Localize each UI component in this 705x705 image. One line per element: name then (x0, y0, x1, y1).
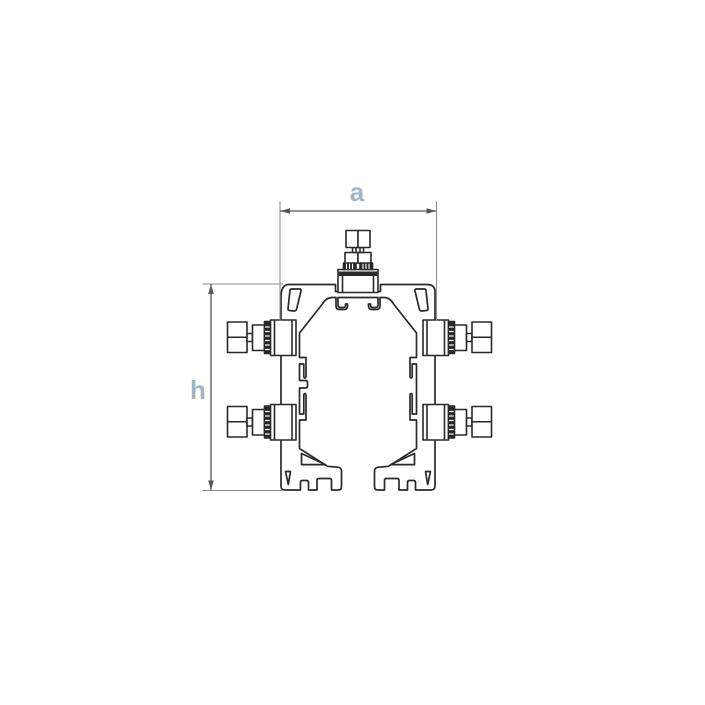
drawing-page: a h (0, 0, 705, 705)
web-hole-left (302, 454, 326, 465)
arrowhead-a-left (280, 208, 290, 214)
clamp-nut-lower-right (358, 253, 371, 264)
arrowhead-h-bottom (208, 481, 214, 491)
bolt-knurl (265, 406, 271, 438)
clamp-knob-left (346, 231, 358, 248)
bolt-knurl (449, 322, 455, 354)
web-hole-right (391, 454, 415, 465)
bolt-right-bottom (423, 405, 492, 441)
arrowhead-a-right (427, 208, 437, 214)
side-bolts (228, 320, 492, 440)
bolt-right-top (423, 320, 492, 356)
dimension-h: h (190, 284, 284, 491)
bolt-left-bottom (228, 405, 297, 441)
arrowhead-h-top (208, 284, 214, 294)
profile-body-group (281, 285, 435, 491)
bolt-neck (467, 334, 473, 342)
bolt-neck (247, 418, 253, 426)
bolt-neck (247, 334, 253, 342)
bolt-left-top (228, 320, 297, 356)
bolt-washer (253, 325, 265, 351)
dimension-label-a: a (350, 177, 365, 207)
bolt-washer (455, 410, 467, 436)
bolt-knurl (265, 322, 271, 354)
clamp-nut-lower-left (345, 253, 358, 264)
technical-drawing-canvas: a h (0, 0, 705, 705)
clamp-block-band (339, 272, 377, 277)
extension-lines-h (203, 284, 285, 491)
bolt-washer (455, 325, 467, 351)
bolt-washer (253, 410, 265, 436)
clamp-knob-right (358, 231, 370, 248)
bolt-knurl (449, 406, 455, 438)
bolt-neck (467, 418, 473, 426)
dimension-label-h: h (190, 375, 206, 405)
top-clamp-assembly (338, 231, 378, 293)
